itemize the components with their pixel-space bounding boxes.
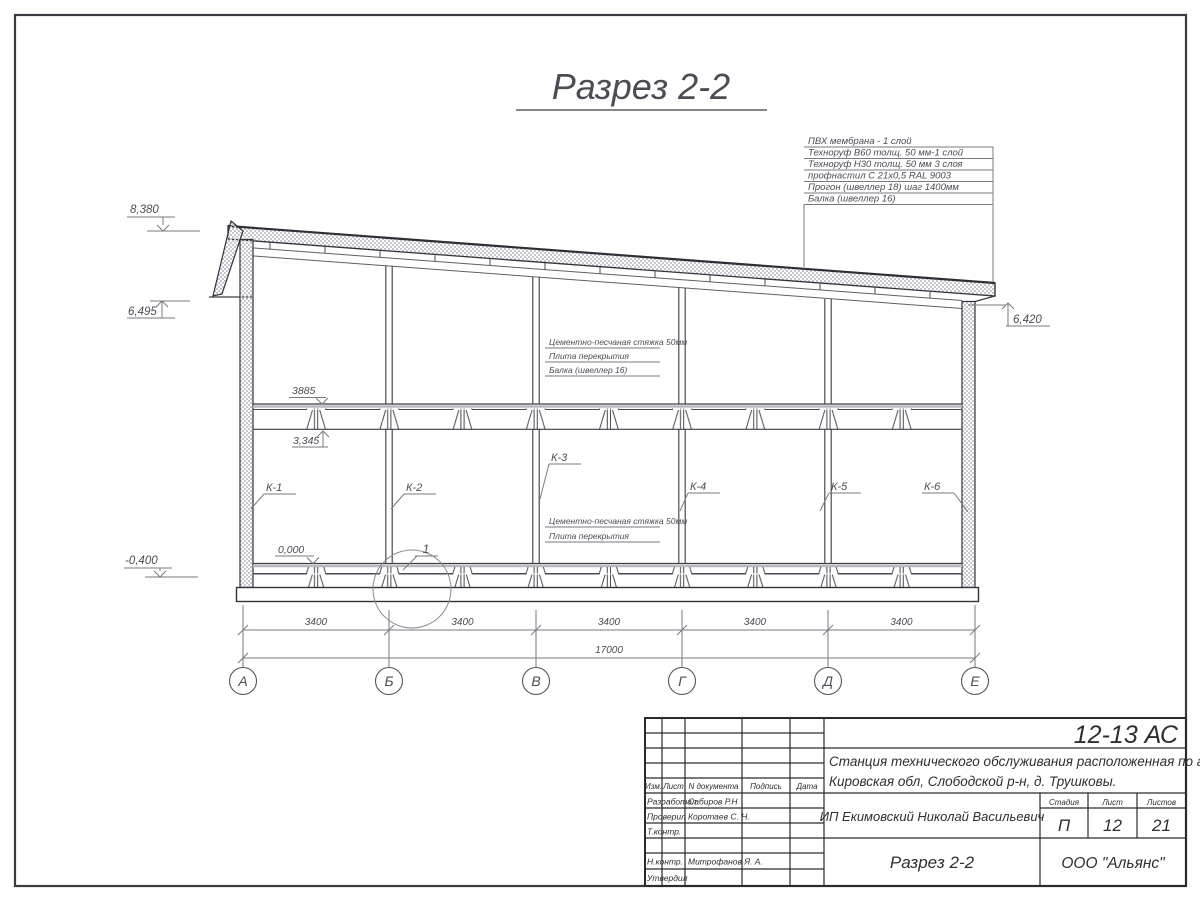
total-dim: 17000 [595,645,623,656]
elevation-0000: 0,000 [278,544,304,556]
axis-label: Б [384,673,393,689]
tb-sheets-value: 21 [1151,816,1171,835]
elevation-6420: 6,420 [1013,314,1042,326]
tb-role-name: Коротаев С. Н. [688,812,750,822]
foundation [237,588,979,602]
elevation-m0400: -0,400 [125,555,158,567]
bay-dim: 3400 [744,617,767,628]
slab-note: Цементно-песчаная стяжка 50мм [549,337,687,347]
tb-role-label: Утвердил [646,873,688,883]
tb-sheet-label: Лист [1101,798,1123,807]
tb-header-data: Дата [795,782,818,791]
slab-notes-upper: Цементно-песчаная стяжка 50мм Плита пере… [545,337,687,376]
tb-stage-label: Стадия [1049,798,1080,807]
column-label: К-6 [924,481,941,493]
columns-lower [386,429,831,563]
detail-label: 1 [423,542,430,556]
elevation-8380: 8,380 [130,204,159,216]
floor-slab [253,404,962,429]
column-label: К-2 [406,482,422,494]
column-label: К-4 [690,481,706,493]
slab-note: Плита перекрытия [549,531,629,541]
tb-role-name: Сабиров Р.Н [688,797,738,807]
axis-label: Г [678,673,687,689]
tb-header-ndoc: N документа [688,782,739,791]
tb-sheets-label: Листов [1146,798,1176,807]
tb-header-podpis: Подпись [750,782,782,791]
elevation-6495: 6,495 [128,306,157,318]
sheet-title-text: Разрез 2-2 [552,66,730,107]
callout-line: Балка (швеллер 16) [808,194,896,205]
roof-callout: ПВХ мембрана - 1 слой Техноруф В60 толщ.… [804,136,993,282]
tb-project-line1: Станция технического обслуживания распол… [829,754,1200,769]
bay-dim: 3400 [305,617,328,628]
callout-line: Техноруф В60 толщ. 50 мм-1 слой [808,148,964,159]
tb-doc-code: 12-13 АС [1074,721,1179,749]
dimension-rows: 3400 3400 3400 3400 3400 17000 [238,605,980,667]
callout-line: профнастил С 21х0,5 RAL 9003 [808,171,952,182]
tb-header-izm: Изм. [645,782,662,791]
column-label: К-1 [266,482,282,494]
tb-role-label: Т.контр. [647,827,681,837]
tb-drawing-name: Разрез 2-2 [890,853,975,872]
axis-bubbles: А Б В Г Д Е [230,668,989,695]
tb-sheet-value: 12 [1103,816,1122,835]
tb-role-name: Митрофанов Я. А. [688,857,763,867]
callout-line: Техноруф Н30 толщ. 50 мм 3 слоя [808,159,963,170]
column-labels: К-1 К-2 К-3 К-4 К-5 К-6 [251,452,968,512]
slab-note: Плита перекрытия [549,351,629,361]
tb-client: ИП Екимовский Николай Васильевич [820,809,1045,824]
ground-slab [237,564,979,602]
tb-company: ООО "Альянс" [1061,855,1166,872]
columns-upper [386,266,831,404]
drawing-sheet: Разрез 2-2 [0,0,1200,900]
column-label: К-3 [551,452,568,464]
bay-dim: 3400 [890,617,913,628]
tb-role-label: Проверил [647,812,686,822]
slab-notes-lower: Цементно-песчаная стяжка 50мм Плита пере… [545,516,687,542]
axis-label: Е [970,673,980,689]
roof-assembly [209,221,995,309]
tb-stage-value: П [1058,816,1071,835]
sheet-title: Разрез 2-2 [516,66,767,110]
slab-note: Цементно-песчаная стяжка 50мм [549,516,687,526]
elevation-3885: 3885 [292,385,316,397]
callout-line: ПВХ мембрана - 1 слой [808,136,912,147]
tb-project-line2: Кировская обл, Слободской р-н, д. Трушко… [829,774,1116,789]
column-label: К-5 [831,481,848,493]
axis-label: Д [821,673,833,689]
axis-label: В [531,673,540,689]
elevation-3345: 3,345 [293,435,319,447]
bay-dim: 3400 [451,617,474,628]
title-block: Изм. Лист N документа Подпись Дата Разра… [645,718,1200,886]
tb-header-list: Лист [662,782,684,791]
tb-role-label: Н.контр. [647,857,683,867]
callout-line: Прогон (швеллер 18) шаг 1400мм [808,182,959,193]
slab-note: Балка (швеллер 16) [549,365,627,375]
axis-label: А [237,673,247,689]
bay-dim: 3400 [598,617,621,628]
